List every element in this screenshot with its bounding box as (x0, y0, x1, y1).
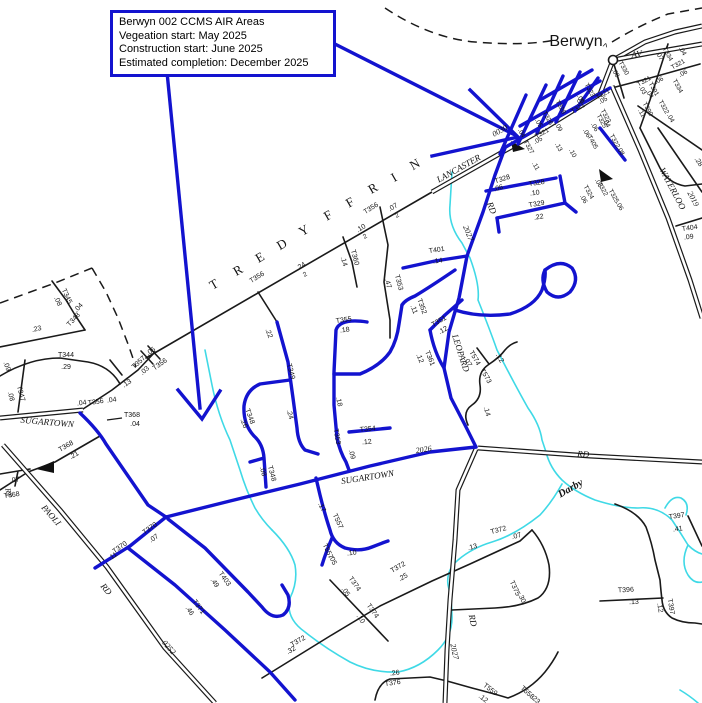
map-label: RD (467, 612, 480, 627)
map-label: T376 (384, 679, 401, 688)
waterloo-rd (612, 86, 702, 318)
map-label: T374 (365, 603, 380, 620)
map-label: .23 (31, 325, 42, 334)
tredyffrin-lancaster-road (146, 192, 432, 358)
callout-vegetation: Vegeation start: May 2025 (119, 30, 327, 44)
map-label: Berwyn (549, 33, 602, 50)
map-label: .49 (209, 577, 220, 589)
map-label: Darby (556, 477, 586, 501)
map-label: T348 (66, 312, 82, 329)
map-label: .11 (530, 161, 540, 172)
map-label: T353 (393, 274, 404, 291)
map-label: .04 (106, 396, 117, 404)
map-stage: LANCASTER0030AVWATERLOO2019SUGARTOWNSUGA… (0, 0, 702, 703)
map-label: .24 (295, 261, 307, 272)
map-label: 2 (362, 233, 369, 241)
callout-title: Berwyn 002 CCMS AIR Areas (119, 16, 327, 30)
map-label: .12 (362, 439, 372, 447)
map-label: N (407, 155, 423, 173)
map-label: .22 (263, 328, 273, 340)
map-label: T349 (285, 363, 296, 380)
map-label: .04 (76, 399, 87, 407)
t353-curve-blue (334, 305, 402, 374)
map-label: T372 (490, 525, 507, 536)
map-label: T (207, 276, 221, 293)
right-edge-road (688, 516, 702, 546)
t352-blue (402, 270, 455, 305)
t344-road (0, 358, 120, 384)
map-label: .04 (665, 113, 676, 125)
map-label: SUGARTOWN (20, 415, 75, 430)
map-label: AV (630, 48, 644, 60)
map-label: RD (576, 449, 590, 460)
t371-blue (128, 548, 295, 700)
t403-blue (168, 519, 289, 616)
map-label: T397 (668, 512, 685, 521)
map-label: .09 (347, 449, 356, 460)
map-label: Y (296, 221, 312, 239)
map-label: T353 (332, 428, 342, 445)
map-label: .08 (610, 68, 621, 80)
t329-loop-stem (455, 270, 545, 315)
map-label: .46 (184, 605, 195, 617)
map-label: I (388, 170, 399, 185)
map-label: T356 (249, 270, 266, 284)
map-label: .07 (148, 533, 160, 544)
map-label: .21 (68, 450, 80, 461)
map-label: .09 (553, 122, 564, 134)
map-label: .06 (589, 122, 600, 134)
map-label: 2 (302, 271, 309, 279)
map-label: .28 (693, 156, 702, 168)
map-label: .26 (389, 669, 400, 677)
map-label: .14 (339, 256, 348, 267)
oneway-arrow-icon (36, 461, 54, 473)
t353-t355-blue (334, 321, 367, 470)
map-label: .18 (339, 326, 350, 334)
map-label: .06 (614, 201, 625, 213)
map-label: .12 (655, 602, 664, 613)
t349-blue (277, 322, 318, 454)
map-label: .06 (493, 184, 505, 194)
map-label: T361 (423, 350, 436, 368)
callout-construction: Construction start: June 2025 (119, 43, 327, 57)
map-label: T334 (671, 78, 684, 95)
map-label: RD (98, 580, 114, 597)
map-label: .08 (258, 466, 267, 477)
map-label: F (321, 207, 335, 224)
map-label: T368 (124, 412, 140, 419)
map-label: .04 (73, 302, 85, 314)
map-label: 2027 (448, 643, 460, 661)
map-label: .12 (414, 353, 424, 365)
t353-black (380, 207, 390, 338)
map-label: R (230, 261, 245, 278)
map-label: 2 (394, 212, 401, 220)
t372-road (262, 530, 532, 678)
map-label: F (343, 194, 357, 211)
map-label: R (365, 179, 380, 196)
map-label: PAOLI (39, 502, 64, 528)
map-label: D (274, 235, 290, 253)
map-label: T557 (331, 513, 344, 531)
map-label: .07 (9, 476, 20, 484)
dot23-road (0, 330, 85, 347)
map-label: .05 (145, 346, 157, 357)
map-label: .11 (409, 304, 419, 315)
map-label: .04 (130, 421, 140, 428)
map-label: .13 (467, 543, 478, 552)
map-label: T396 (618, 587, 634, 595)
map-label: .05 (340, 586, 351, 598)
annotation-arrow-right (327, 40, 515, 135)
map-label: T401 (428, 246, 445, 255)
map-label: T368 (3, 491, 20, 500)
map-label: T356 (87, 398, 104, 407)
map-label: .09 (683, 233, 694, 241)
t348-blue (244, 380, 290, 487)
map-label: .10 (529, 189, 540, 197)
map-label: T356 (152, 357, 169, 372)
map-label: .05 (327, 554, 338, 566)
map-label: .10 (346, 549, 357, 557)
map-label: .22 (533, 213, 544, 222)
map-label: .08 (52, 295, 63, 307)
sugartown-blue (80, 413, 476, 517)
map-label: T348 (266, 465, 277, 482)
map-label: .41 (672, 525, 683, 533)
map-label: .12 (477, 693, 489, 703)
map-label: .08 (6, 391, 15, 402)
ccms-air-highlight (80, 70, 625, 700)
t329-loop (543, 263, 576, 297)
map-label: T347 (15, 385, 26, 402)
map-label: T355 (335, 316, 352, 325)
map-label: T354 (360, 425, 377, 433)
map-label: .10 (355, 223, 367, 234)
map-label: .14 (482, 406, 491, 417)
map-label: .13 (629, 599, 639, 607)
berwyn-junction-circle (609, 56, 618, 65)
map-label: .08 (615, 146, 626, 158)
map-label: T328 (528, 179, 545, 188)
map-label: T344 (58, 352, 74, 359)
map-label: T356 (363, 201, 380, 215)
t368-leader (107, 418, 122, 420)
t375-loop (452, 530, 550, 610)
callout-box: Berwyn 002 CCMS AIR Areas Vegeation star… (110, 10, 336, 77)
map-label: .13 (553, 142, 564, 154)
map: LANCASTER0030AVWATERLOO2019SUGARTOWNSUGA… (0, 0, 702, 703)
map-label: T404 (681, 224, 698, 233)
map-label: .24 (285, 409, 294, 420)
annotation-arrow-down (167, 72, 200, 408)
callout-completion: Estimated completion: December 2025 (119, 57, 327, 71)
map-label: .10 (567, 148, 578, 160)
map-label: .25 (397, 572, 409, 583)
map-label: .14 (432, 257, 443, 265)
paoli-rd (3, 445, 215, 703)
map-label: .13 (121, 378, 133, 389)
t349-black-top (258, 292, 277, 322)
map-label: E (253, 249, 267, 266)
map-label: .29 (61, 364, 71, 371)
